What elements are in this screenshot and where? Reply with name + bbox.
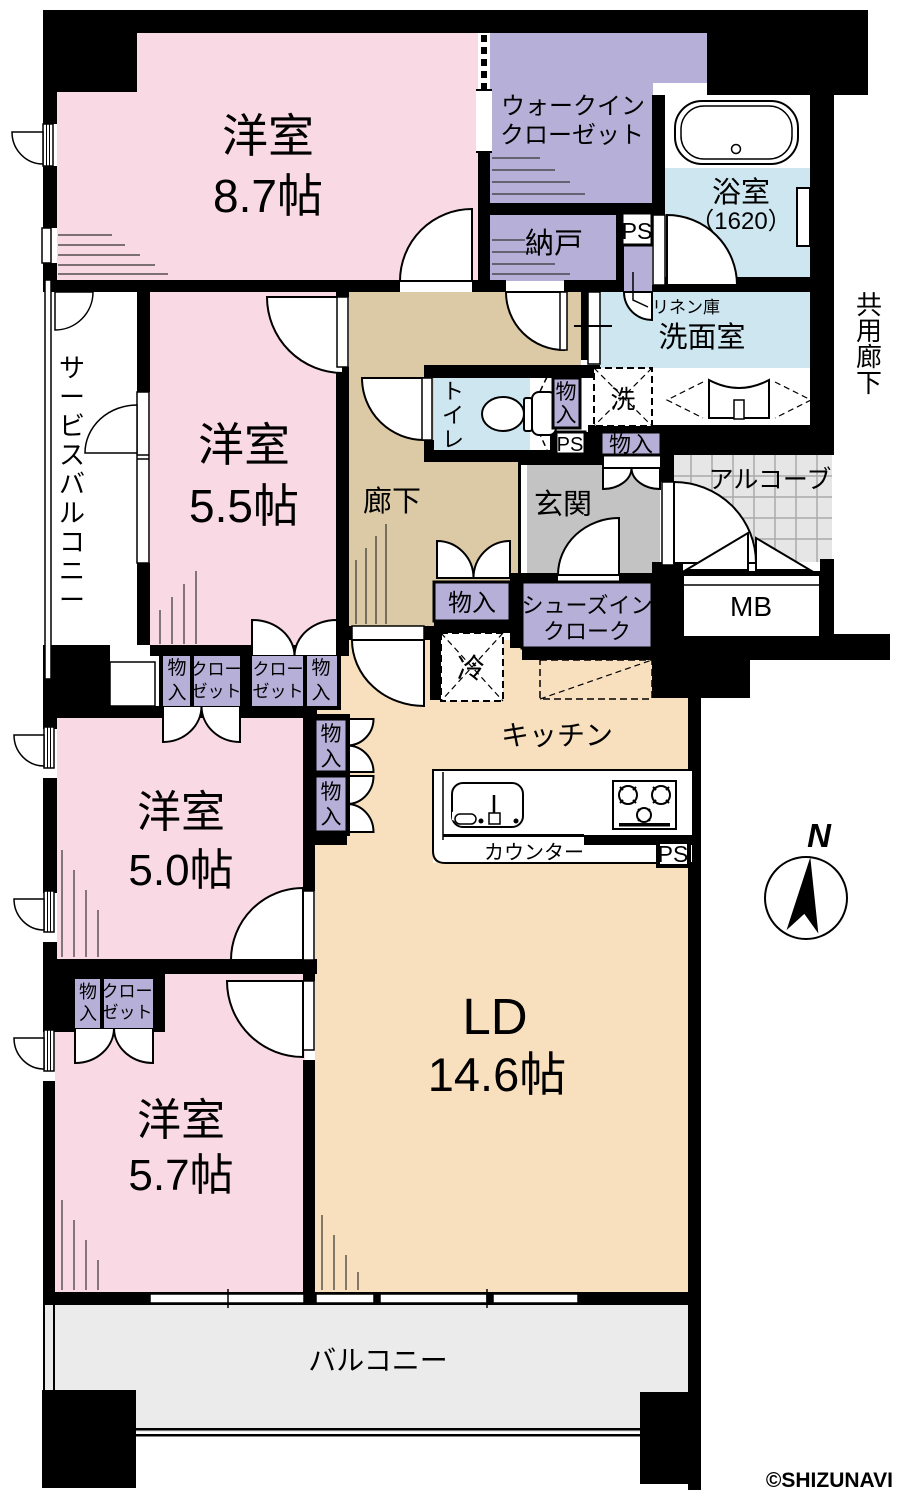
svg-text:物入: 物入 <box>448 590 496 617</box>
svg-text:5.7帖: 5.7帖 <box>128 1151 233 1200</box>
svg-text:アルコーブ: アルコーブ <box>709 466 832 494</box>
svg-text:ゼット: ゼット <box>191 682 242 701</box>
svg-text:クローク: クローク <box>543 619 631 644</box>
svg-text:ウォークイン: ウォークイン <box>501 93 645 120</box>
svg-text:玄関: 玄関 <box>534 488 592 521</box>
svg-text:物: 物 <box>79 982 97 1002</box>
svg-text:洋室: 洋室 <box>198 419 290 471</box>
svg-text:入: 入 <box>311 683 330 704</box>
svg-text:MB: MB <box>730 591 772 622</box>
svg-text:N: N <box>807 817 832 854</box>
svg-text:PS: PS <box>622 218 653 244</box>
svg-text:PS: PS <box>557 434 584 456</box>
svg-text:洋室: 洋室 <box>222 110 314 162</box>
svg-text:5.5帖: 5.5帖 <box>189 480 299 532</box>
svg-text:物入: 物入 <box>609 432 653 457</box>
svg-text:8.7帖: 8.7帖 <box>213 170 323 222</box>
svg-text:冷: 冷 <box>457 653 485 684</box>
svg-text:洋室: 洋室 <box>137 1096 225 1145</box>
svg-text:5.0帖: 5.0帖 <box>128 846 233 895</box>
svg-text:入: 入 <box>79 1004 97 1024</box>
svg-text:©SHIZUNAVI: ©SHIZUNAVI <box>766 1469 893 1492</box>
svg-text:物: 物 <box>167 657 186 679</box>
svg-text:サービスバルコニー: サービスバルコニー <box>59 353 85 615</box>
svg-text:クロー: クロー <box>191 660 242 679</box>
svg-text:洗面室: 洗面室 <box>658 321 745 354</box>
svg-text:クロー: クロー <box>102 982 153 1001</box>
svg-text:14.6帖: 14.6帖 <box>428 1048 566 1101</box>
svg-text:キッチン: キッチン <box>501 720 613 751</box>
svg-text:クロー: クロー <box>253 660 304 679</box>
svg-text:洗: 洗 <box>610 386 635 414</box>
svg-text:シューズイン: シューズイン <box>522 593 653 618</box>
svg-text:バルコニー: バルコニー <box>308 1345 447 1376</box>
svg-text:物入: 物入 <box>556 381 577 427</box>
svg-text:クローゼット: クローゼット <box>500 122 644 149</box>
svg-text:浴室: 浴室 <box>712 176 770 209</box>
svg-text:PS: PS <box>658 841 689 867</box>
svg-text:納戸: 納戸 <box>525 227 583 260</box>
svg-text:ゼット: ゼット <box>102 1003 153 1022</box>
svg-text:入: 入 <box>167 683 186 704</box>
svg-text:LD: LD <box>462 988 527 1045</box>
svg-text:洋室: 洋室 <box>137 788 225 837</box>
svg-text:トイレ: トイレ <box>442 379 464 452</box>
svg-text:廊下: 廊下 <box>363 485 421 518</box>
svg-text:カウンター: カウンター <box>484 841 584 864</box>
svg-text:物: 物 <box>311 657 330 679</box>
svg-text:リネン庫: リネン庫 <box>652 298 720 317</box>
svg-text:ゼット: ゼット <box>253 682 304 701</box>
svg-text:共用廊下: 共用廊下 <box>856 290 882 398</box>
svg-text:（1620）: （1620） <box>690 208 791 235</box>
